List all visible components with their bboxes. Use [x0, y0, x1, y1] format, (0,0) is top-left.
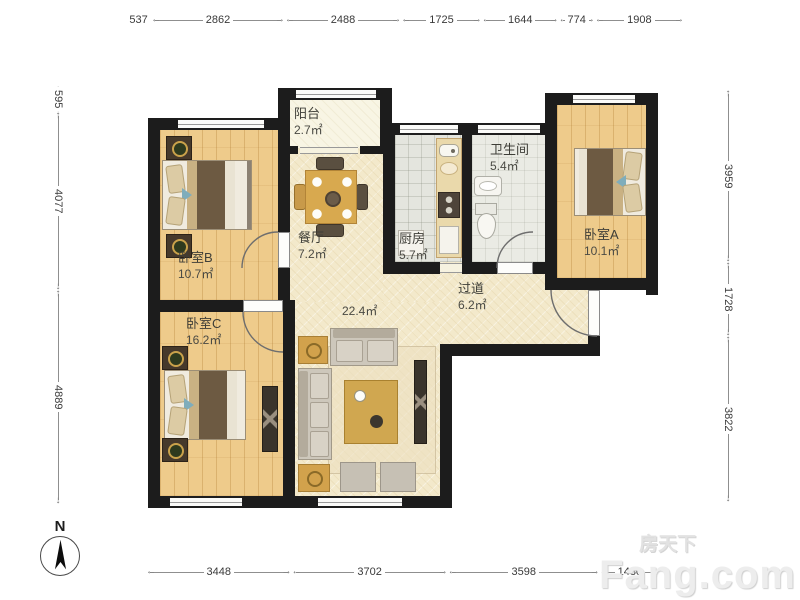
balcony-threshold: [300, 147, 358, 154]
dimension: 3702: [292, 564, 448, 580]
wall: [360, 146, 380, 154]
wall: [290, 146, 298, 154]
north-arrow-icon: [40, 536, 80, 576]
kitchen-counter: [436, 138, 462, 258]
bed-throw-pillow: [184, 398, 194, 412]
room-label-bathroom: 卫生间 5.4㎡: [490, 142, 529, 174]
wall: [383, 135, 395, 274]
room-name: 阳台: [294, 106, 323, 122]
dimension: 1728: [720, 262, 736, 337]
bed-throw-pillow: [616, 175, 626, 189]
dining-chair: [356, 184, 368, 210]
dimension: 3959: [720, 90, 736, 262]
room-area: 22.4㎡: [342, 303, 377, 319]
bed: [164, 370, 246, 440]
dimension: 1725: [401, 12, 482, 28]
room-area: 10.7㎡: [178, 266, 213, 282]
counter-cabinet: [439, 226, 459, 254]
sofa: [298, 368, 332, 460]
dimension-label: 774: [565, 14, 589, 26]
bathroom-sink: [474, 176, 502, 196]
dining-table: [305, 170, 357, 224]
room-label-dining: 餐厅 7.2㎡: [298, 230, 327, 262]
room-area: 5.7㎡: [399, 247, 428, 263]
ottoman: [340, 462, 376, 492]
floorplan-viewer: 阳台 2.7㎡ 卧室B 10.7㎡ 餐厅 7.2㎡ 厨房 5.7㎡ 卫生间 5.…: [0, 0, 800, 600]
window: [318, 496, 402, 508]
sofa-cushion: [367, 340, 394, 362]
wall: [440, 344, 452, 508]
compass: N: [36, 518, 84, 576]
wall: [383, 262, 440, 274]
room-area: 5.4㎡: [490, 158, 529, 174]
dimension: 537: [126, 12, 151, 28]
room-area: 7.2㎡: [298, 246, 327, 262]
dimension: 774: [559, 12, 595, 28]
room-name: 卧室B: [178, 250, 213, 266]
nightstand: [166, 136, 192, 160]
dimension-label: 3822: [722, 404, 734, 434]
door-leaf: [243, 300, 283, 312]
wall: [440, 344, 600, 356]
room-label-hallway: 过道 6.2㎡: [458, 281, 487, 313]
dimension-label: 1430: [615, 566, 645, 578]
window: [170, 496, 242, 508]
room-label-balcony: 阳台 2.7㎡: [294, 106, 323, 138]
room-label-bedroom-b: 卧室B 10.7㎡: [178, 250, 213, 282]
wall: [148, 300, 243, 312]
dimension-label: 1908: [624, 14, 654, 26]
dimension: 2862: [151, 12, 285, 28]
wall: [646, 93, 658, 295]
room-name: 过道: [458, 281, 487, 297]
room-area: 6.2㎡: [458, 297, 487, 313]
window: [573, 93, 635, 105]
dimension-label: 1725: [426, 14, 456, 26]
bed: [162, 160, 252, 230]
dimension: 3448: [146, 564, 292, 580]
window: [478, 123, 540, 135]
dimension: 3822: [720, 336, 736, 502]
sofa-cushion: [336, 340, 363, 362]
side-table: [298, 336, 328, 364]
tv-cabinet: [414, 360, 427, 444]
room-area: 2.7㎡: [294, 122, 323, 138]
room-name: 卧室C: [186, 316, 221, 332]
nightstand: [162, 346, 188, 370]
wall: [545, 93, 557, 290]
dimension: 4889: [50, 290, 66, 504]
dimension-label: 595: [52, 87, 64, 111]
dimension: 1908: [595, 12, 684, 28]
room-name: 餐厅: [298, 230, 327, 246]
sofa-cushion: [310, 402, 329, 428]
kitchen-threshold: [440, 263, 462, 273]
sofa-cushion: [310, 431, 329, 457]
dimension-label: 4077: [52, 186, 64, 216]
dimension-label: 4889: [52, 382, 64, 412]
room-label-living: 22.4㎡: [342, 303, 377, 319]
window: [400, 123, 458, 135]
dimension: 595: [50, 86, 66, 112]
toilet: [475, 203, 497, 239]
watermark: 房天下 Fang.com: [599, 529, 796, 594]
wall: [148, 118, 160, 508]
wall: [462, 262, 497, 274]
wall: [545, 278, 658, 290]
wall: [533, 262, 557, 274]
wall: [462, 135, 472, 262]
room-area: 10.1㎡: [584, 243, 619, 259]
dimensions-top: 537 2862 2488 1725 1644 774 1908: [126, 12, 684, 28]
room-label-bedroom-c: 卧室C 16.2㎡: [186, 316, 221, 348]
dimension: 1644: [482, 12, 559, 28]
room-name: 厨房: [399, 231, 428, 247]
coffee-table: [344, 380, 398, 444]
room-name: 卧室A: [584, 227, 619, 243]
kitchen-sink: [439, 144, 459, 157]
bed: [574, 148, 646, 216]
cutting-board: [440, 162, 458, 175]
dimension-label: 1728: [722, 284, 734, 314]
dimension: 2488: [285, 12, 401, 28]
room-label-bedroom-a: 卧室A 10.1㎡: [584, 227, 619, 259]
wardrobe: [262, 386, 278, 452]
dimension: 4077: [50, 112, 66, 290]
wall: [278, 130, 290, 232]
dimension-label: 2488: [328, 14, 358, 26]
watermark-brand: 房天下: [639, 529, 796, 556]
dimension: 1430: [600, 564, 660, 580]
room-label-kitchen: 厨房 5.7㎡: [399, 231, 428, 263]
dimension-label: 1644: [505, 14, 535, 26]
sofa-cushion: [310, 373, 329, 399]
compass-north-label: N: [36, 518, 84, 535]
bed-throw-pillow: [182, 188, 192, 202]
dimension-label: 3959: [722, 161, 734, 191]
nightstand: [162, 438, 188, 462]
dimension-label: 3598: [508, 566, 538, 578]
dimension-label: 537: [126, 14, 150, 26]
door-leaf: [497, 262, 533, 274]
dimension-label: 3448: [204, 566, 234, 578]
dimensions-left: 595 4077 4889: [50, 86, 66, 504]
side-table: [298, 464, 330, 492]
window: [178, 118, 264, 130]
dimension: 3598: [448, 564, 600, 580]
room-area: 16.2㎡: [186, 332, 221, 348]
window: [296, 88, 376, 100]
room-name: 卫生间: [490, 142, 529, 158]
dimensions-bottom: 3448 3702 3598 1430: [146, 564, 660, 580]
door-leaf: [588, 290, 600, 336]
wall: [283, 300, 295, 496]
ottoman: [380, 462, 416, 492]
sofa: [330, 328, 398, 366]
door-leaf: [278, 232, 290, 268]
room-floor-passage: [383, 274, 440, 302]
dining-chair: [316, 157, 344, 170]
dimension-label: 3702: [354, 566, 384, 578]
stove: [438, 192, 460, 218]
dimension-label: 2862: [203, 14, 233, 26]
dimensions-right: 3959 1728 3822: [720, 90, 736, 502]
